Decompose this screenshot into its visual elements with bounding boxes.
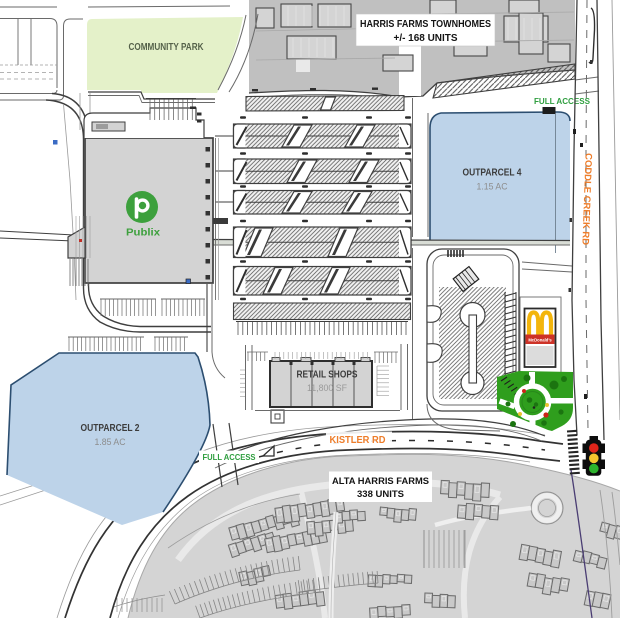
svg-text:RETAIL SHOPS: RETAIL SHOPS: [297, 369, 358, 381]
svg-text:338 UNITS: 338 UNITS: [357, 489, 404, 500]
svg-text:FULL ACCESS: FULL ACCESS: [203, 452, 256, 462]
svg-text:1.15 AC: 1.15 AC: [477, 182, 508, 192]
svg-text:HARRIS FARMS TOWNHOMES: HARRIS FARMS TOWNHOMES: [360, 19, 491, 30]
svg-text:+/- 168 UNITS: +/- 168 UNITS: [394, 33, 458, 44]
svg-text:11,800 SF: 11,800 SF: [307, 383, 347, 394]
svg-text:Publix: Publix: [126, 228, 160, 239]
svg-text:KISTLER RD: KISTLER RD: [330, 434, 386, 446]
svg-text:OUTPARCEL 4: OUTPARCEL 4: [463, 168, 522, 179]
svg-text:FULL ACCESS: FULL ACCESS: [534, 96, 590, 106]
svg-text:COMMUNITY PARK: COMMUNITY PARK: [129, 42, 205, 53]
svg-text:OUTPARCEL 2: OUTPARCEL 2: [81, 423, 140, 434]
svg-text:McDonald’s: McDonald’s: [528, 338, 552, 343]
svg-text:ALTA HARRIS FARMS: ALTA HARRIS FARMS: [332, 476, 429, 487]
svg-text:1.85 AC: 1.85 AC: [95, 437, 126, 447]
